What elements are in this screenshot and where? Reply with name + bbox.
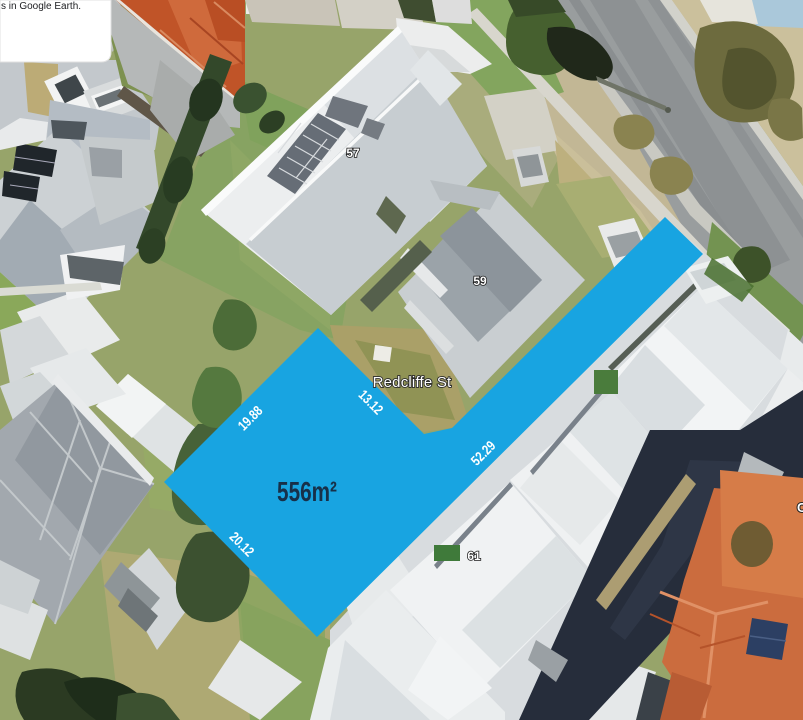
svg-text:57: 57 [346, 146, 360, 160]
svg-text:Redcliffe St: Redcliffe St [373, 374, 452, 391]
svg-text:C: C [797, 500, 803, 515]
svg-text:556m²: 556m² [277, 477, 337, 508]
svg-text:59: 59 [473, 274, 487, 288]
svg-text:61: 61 [467, 549, 481, 563]
svg-text:s in Google Earth.: s in Google Earth. [1, 1, 81, 12]
